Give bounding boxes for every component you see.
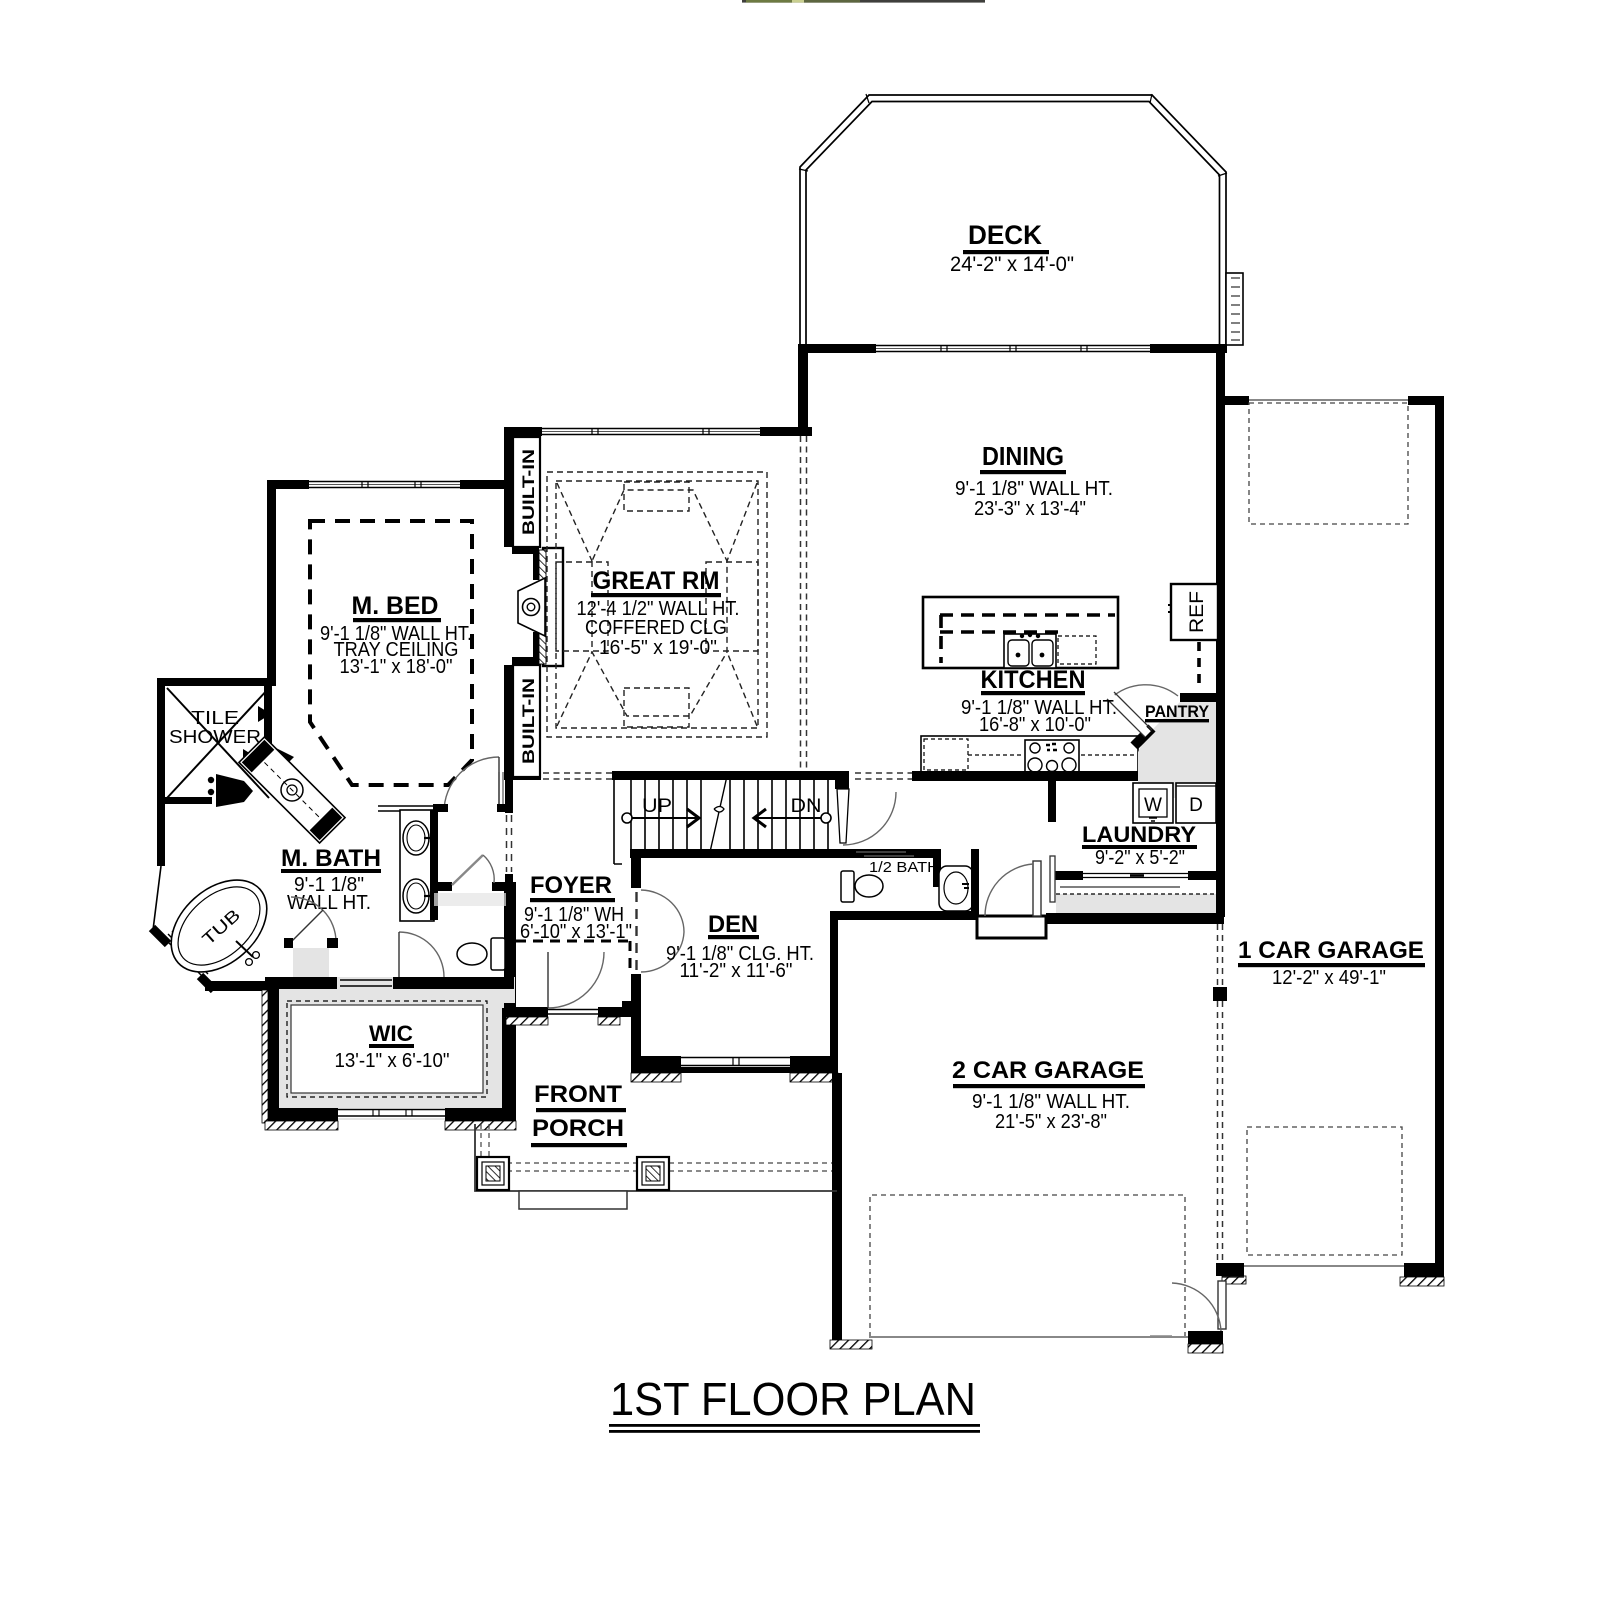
svg-text:9'-2" x 5'-2": 9'-2" x 5'-2" — [1095, 847, 1185, 869]
svg-text:9'-1 1/8" WALL HT.: 9'-1 1/8" WALL HT. — [955, 478, 1113, 500]
svg-text:UP: UP — [642, 796, 672, 817]
svg-text:M. BATH: M. BATH — [281, 845, 381, 872]
svg-text:M. BED: M. BED — [352, 592, 439, 620]
svg-text:1/2 BATH: 1/2 BATH — [869, 859, 939, 876]
svg-text:SHOWER: SHOWER — [169, 727, 261, 747]
svg-text:W: W — [1144, 795, 1162, 816]
svg-text:COFFERED CLG: COFFERED CLG — [585, 617, 727, 639]
svg-text:REF: REF — [1187, 591, 1208, 633]
svg-text:16'-8" x 10'-0": 16'-8" x 10'-0" — [979, 714, 1091, 736]
svg-text:9'-1 1/8" WALL HT.: 9'-1 1/8" WALL HT. — [972, 1091, 1130, 1113]
svg-text:6'-10" x 13'-1": 6'-10" x 13'-1" — [520, 921, 632, 943]
svg-text:DEN: DEN — [708, 911, 758, 938]
svg-text:DECK: DECK — [968, 220, 1042, 250]
svg-text:DN: DN — [791, 796, 822, 817]
svg-text:23'-3" x 13'-4": 23'-3" x 13'-4" — [974, 498, 1086, 520]
svg-text:16'-5" x 19'-0": 16'-5" x 19'-0" — [599, 637, 717, 659]
svg-text:DINING: DINING — [982, 441, 1064, 471]
svg-text:1 CAR GARAGE: 1 CAR GARAGE — [1238, 937, 1424, 964]
svg-text:1ST FLOOR PLAN: 1ST FLOOR PLAN — [610, 1373, 976, 1425]
svg-text:BUILT-IN: BUILT-IN — [519, 678, 538, 764]
svg-text:12'-2" x 49'-1": 12'-2" x 49'-1" — [1272, 967, 1386, 989]
svg-text:PORCH: PORCH — [532, 1115, 624, 1142]
svg-text:24'-2" x 14'-0": 24'-2" x 14'-0" — [950, 253, 1074, 276]
svg-text:WALL HT.: WALL HT. — [287, 892, 371, 914]
svg-text:GREAT RM: GREAT RM — [593, 567, 720, 595]
svg-text:BUILT-IN: BUILT-IN — [519, 449, 538, 535]
svg-text:PANTRY: PANTRY — [1145, 702, 1210, 721]
svg-text:KITCHEN: KITCHEN — [981, 666, 1086, 694]
svg-text:LAUNDRY: LAUNDRY — [1082, 822, 1196, 847]
svg-text:21'-5" x 23'-8": 21'-5" x 23'-8" — [995, 1111, 1107, 1133]
svg-text:D: D — [1189, 795, 1203, 816]
svg-text:FOYER: FOYER — [530, 872, 612, 899]
svg-text:FRONT: FRONT — [534, 1081, 622, 1108]
svg-text:11'-2" x 11'-6": 11'-2" x 11'-6" — [680, 960, 793, 982]
svg-text:WIC: WIC — [369, 1021, 413, 1046]
svg-text:TILE: TILE — [191, 708, 239, 728]
svg-text:13'-1" x 6'-10": 13'-1" x 6'-10" — [335, 1050, 450, 1072]
svg-text:2 CAR GARAGE: 2 CAR GARAGE — [952, 1057, 1144, 1084]
svg-text:13'-1" x 18'-0": 13'-1" x 18'-0" — [340, 656, 453, 678]
